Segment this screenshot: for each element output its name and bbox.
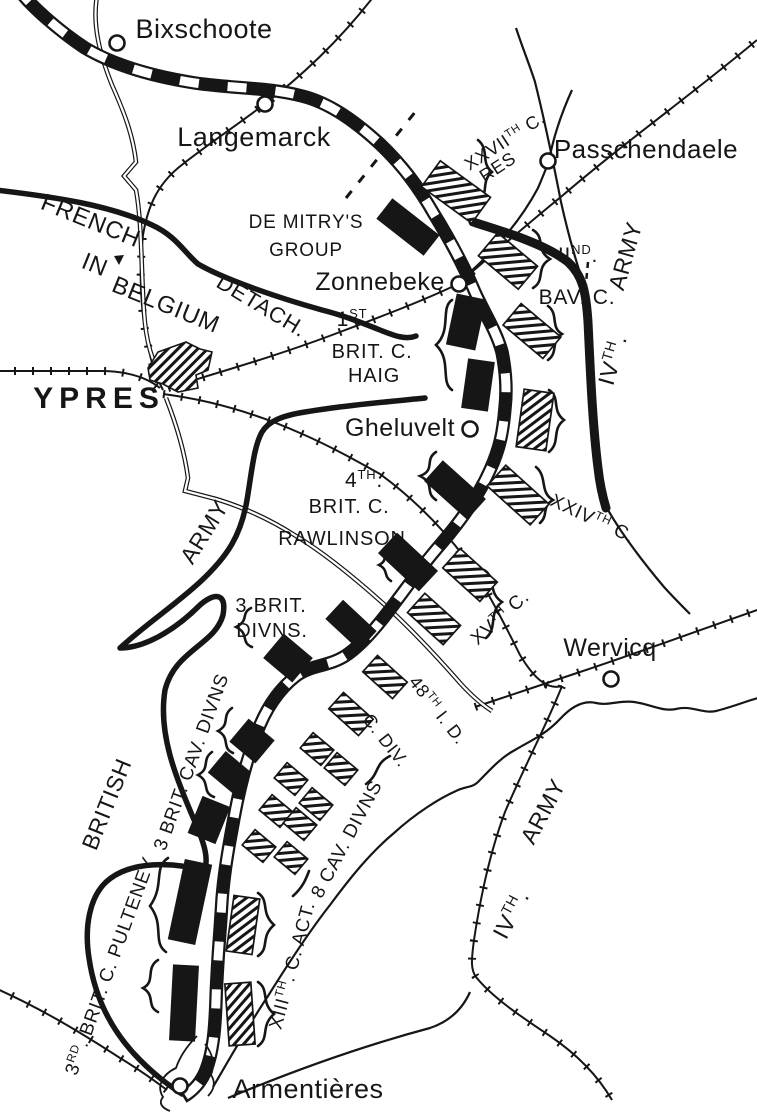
german-unit-rect [363, 655, 407, 698]
town-circle-zonnebeke [452, 277, 467, 292]
label-pulteney-part: . BRIT. C. PULTENEY [72, 854, 160, 1050]
label-haig-part: HAIG [348, 365, 400, 387]
river-lys [213, 698, 757, 1087]
label-bav-c: BAV. C. [539, 286, 616, 309]
label-xiii-c-part: XIII [266, 996, 294, 1032]
label-detach: DETACH. [212, 269, 311, 342]
label-xxiv-c-part: XXIV [547, 490, 598, 529]
label-army-b-part: ARMY [515, 774, 571, 848]
label-group: GROUP [269, 240, 343, 261]
german-unit-rect [443, 549, 498, 602]
label-iind-part: ND [571, 242, 591, 257]
label-in-part: IN [78, 248, 112, 283]
label-ypres: YPRES [33, 382, 165, 415]
town-label-bixschoote: Bixschoote [135, 14, 272, 44]
label-de-mitrys: DE MITRY'S [249, 212, 364, 233]
label-belgium-part: BELGIUM [108, 271, 223, 339]
label-de-mitrys-part: DE MITRY'S [249, 212, 364, 233]
label-brit-3-part: 3 BRIT. [235, 595, 306, 617]
label-c-div: C. DIV. [359, 710, 413, 771]
town-label-wervicq: Wervicq [563, 634, 656, 662]
town-label-passchendaele: Passchendaele [554, 134, 738, 164]
allied-unit-rect [169, 964, 199, 1041]
label-brit-c-4-part: BRIT. C. [309, 496, 390, 518]
label-forty8-id-part: I. D. [428, 702, 470, 748]
label-army-r-part: ARMY [603, 219, 647, 293]
label-brit-c-4: BRIT. C. [309, 496, 390, 518]
label-pulteney: 3RD. BRIT. C. PULTENEY [60, 854, 160, 1078]
town-circle-bixschoote [110, 36, 125, 51]
german-unit-rect [300, 733, 334, 766]
label-xxvii-c-part: C. [517, 108, 549, 139]
label-fourth-part: TH [357, 467, 376, 482]
label-army-r: ARMY [603, 219, 647, 293]
label-fourth: 4TH. [345, 467, 383, 492]
label-brit-3: 3 BRIT. [235, 595, 306, 617]
town-circle-gheluvelt [463, 422, 478, 437]
label-xiii-c: XIIITH. C. ACT. [264, 899, 319, 1031]
label-first-part: 1 [337, 308, 349, 331]
label-british: BRITISH [76, 754, 136, 853]
label-ivth-r: IVTH. [593, 332, 632, 388]
label-first-part: ST [349, 306, 367, 321]
label-detach-part: DETACH. [212, 269, 311, 342]
label-british-part: BRITISH [76, 754, 136, 853]
german-unit-rect [324, 753, 358, 786]
label-iind-part: . [592, 244, 599, 267]
label-in: IN [78, 248, 112, 283]
allied-unit-rect [446, 293, 486, 350]
german-unit-rect [516, 389, 554, 451]
label-haig: HAIG [348, 365, 400, 387]
label-rawlinson: RAWLINSON [278, 528, 406, 550]
town-label-armentieres: Armentières [232, 1074, 383, 1104]
label-c-div-part: C. DIV. [359, 710, 413, 771]
map-page: BixschooteLangemarckPasschendaeleZonnebe… [0, 0, 757, 1112]
allied-unit-rect [461, 358, 495, 411]
german-unit-rect [274, 842, 308, 875]
town-label-langemarck: Langemarck [177, 122, 331, 152]
town-label-zonnebeke: Zonnebeke [315, 268, 445, 296]
german-unit-rect [274, 763, 308, 796]
label-xiii-c-part: . C. ACT. [278, 900, 320, 985]
label-french: FRENCH [37, 189, 144, 253]
label-bav-c-part: BAV. C. [539, 286, 616, 309]
town-label-gheluvelt: Gheluvelt [345, 414, 455, 442]
french-pointer-arrow [114, 255, 124, 265]
label-xxiv-c: XXIVTH C. [547, 489, 638, 547]
german-unit-rect [225, 982, 255, 1046]
label-french-part: FRENCH [37, 189, 144, 253]
ypres-front-map: BixschooteLangemarckPasschendaeleZonnebe… [0, 0, 757, 1112]
town-circle-langemarck [258, 97, 273, 112]
german-unit-rect [487, 465, 549, 525]
label-ypres-part: YPRES [33, 382, 165, 415]
german-unit-rect [226, 895, 260, 954]
label-ivth-b-part: IV [487, 910, 521, 943]
label-belgium: BELGIUM [108, 271, 223, 339]
allied-unit-rect [168, 859, 212, 945]
town-circle-wervicq [604, 672, 619, 687]
label-army-b: ARMY [515, 774, 571, 848]
label-divns-3-part: DIVNS. [236, 620, 307, 642]
front-line-dashes [22, 0, 506, 1097]
town-circle-armentieres [173, 1079, 188, 1094]
label-fourth-part: 4 [345, 469, 357, 492]
label-iind-part: II [558, 244, 571, 267]
allied-unit-rect [229, 719, 274, 764]
label-group-part: GROUP [269, 240, 343, 261]
label-divns-3: DIVNS. [236, 620, 307, 642]
german-unit-rect [242, 830, 276, 863]
label-rawlinson-part: RAWLINSON [278, 528, 406, 550]
label-ivth-b: IVTH. [487, 886, 534, 943]
label-brit-c-1: BRIT. C. [332, 341, 413, 363]
label-brit-c-1-part: BRIT. C. [332, 341, 413, 363]
label-fourth-part: . [376, 469, 383, 492]
label-ivth-r-part: IV [593, 358, 624, 388]
